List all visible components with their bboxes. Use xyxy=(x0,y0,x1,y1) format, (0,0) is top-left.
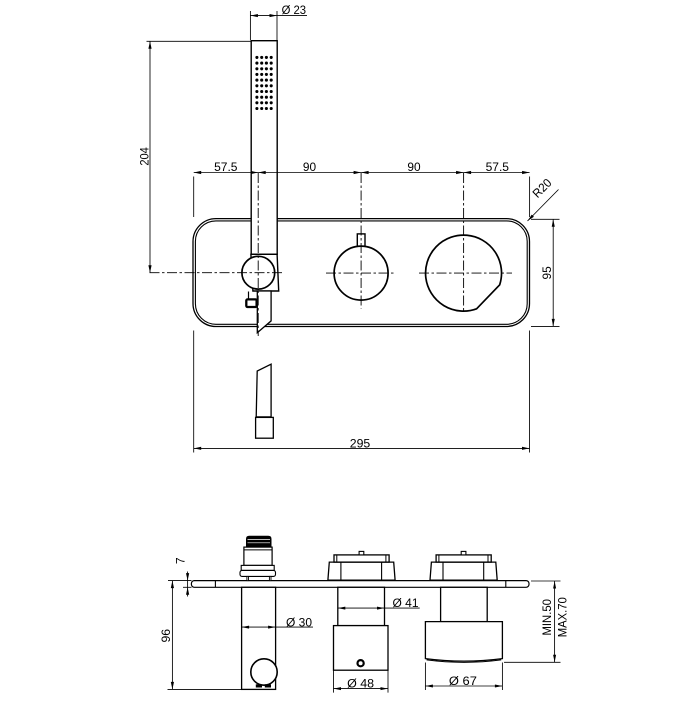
svg-text:57.5: 57.5 xyxy=(486,160,510,174)
svg-text:Ø 30: Ø 30 xyxy=(286,615,312,629)
svg-text:204: 204 xyxy=(137,147,151,166)
svg-text:MIN.50: MIN.50 xyxy=(540,599,554,636)
svg-text:95: 95 xyxy=(540,266,554,279)
svg-text:57.5: 57.5 xyxy=(214,160,238,174)
svg-text:Ø 48: Ø 48 xyxy=(347,676,374,690)
svg-text:90: 90 xyxy=(407,160,420,174)
svg-text:295: 295 xyxy=(350,436,371,450)
svg-text:Ø 23: Ø 23 xyxy=(282,3,307,17)
svg-text:7: 7 xyxy=(174,557,188,564)
svg-text:MAX.70: MAX.70 xyxy=(555,597,569,637)
svg-text:Ø 41: Ø 41 xyxy=(393,596,419,610)
svg-text:90: 90 xyxy=(303,160,316,174)
svg-text:96: 96 xyxy=(159,629,173,643)
svg-text:Ø 67: Ø 67 xyxy=(449,674,477,688)
